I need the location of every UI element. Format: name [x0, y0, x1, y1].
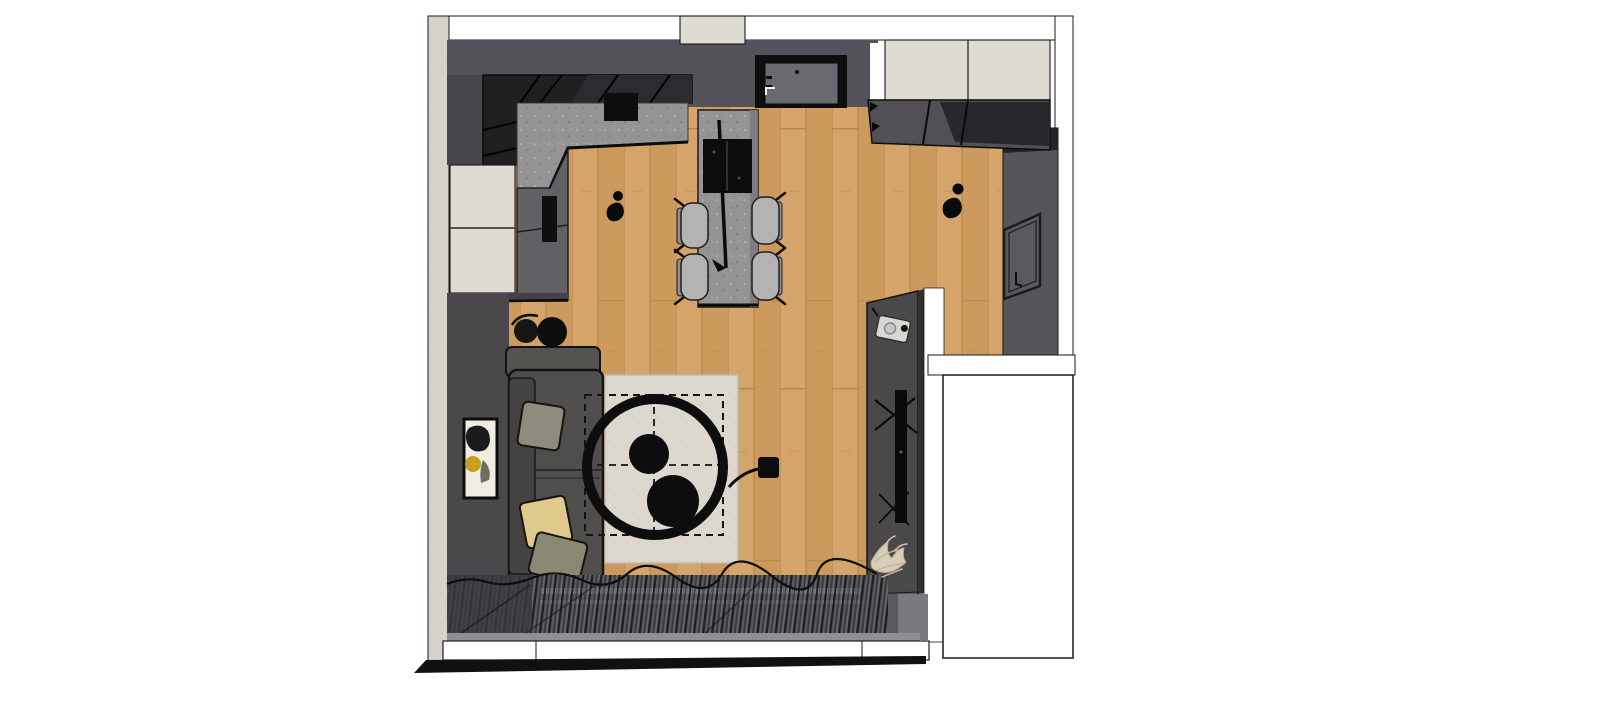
door-side-white-sliver	[870, 43, 885, 107]
picture-frame	[464, 419, 497, 498]
exterior-wall-top	[449, 16, 1073, 40]
door-hinge-mark	[766, 76, 772, 79]
tv	[895, 390, 907, 523]
left-wall-upper-column	[447, 75, 483, 165]
entrance-door	[755, 55, 847, 108]
serving-bowl-large	[647, 475, 699, 527]
wardrobe-fronts	[868, 100, 1050, 150]
counter-cooktop	[604, 93, 638, 121]
cabinet-top-near-door	[680, 16, 745, 44]
corridor	[928, 355, 1075, 375]
hallway-wardrobe	[885, 40, 1050, 100]
door-leaf	[765, 63, 838, 104]
art-yellow-shape	[465, 456, 481, 472]
adjacent-room	[943, 375, 1073, 658]
oven-niche	[542, 196, 557, 242]
serving-bowl-small	[629, 434, 669, 474]
leaning-wall-frame	[1004, 214, 1040, 299]
cream-base-cabinets	[450, 165, 515, 293]
cushion-green	[517, 401, 565, 451]
exterior-wall-left-textured	[428, 16, 449, 661]
floor-plan-svg	[0, 0, 1600, 717]
door-knob	[795, 70, 799, 74]
floor-plan-canvas	[0, 0, 1600, 717]
media-wall-back-wall	[924, 288, 944, 642]
